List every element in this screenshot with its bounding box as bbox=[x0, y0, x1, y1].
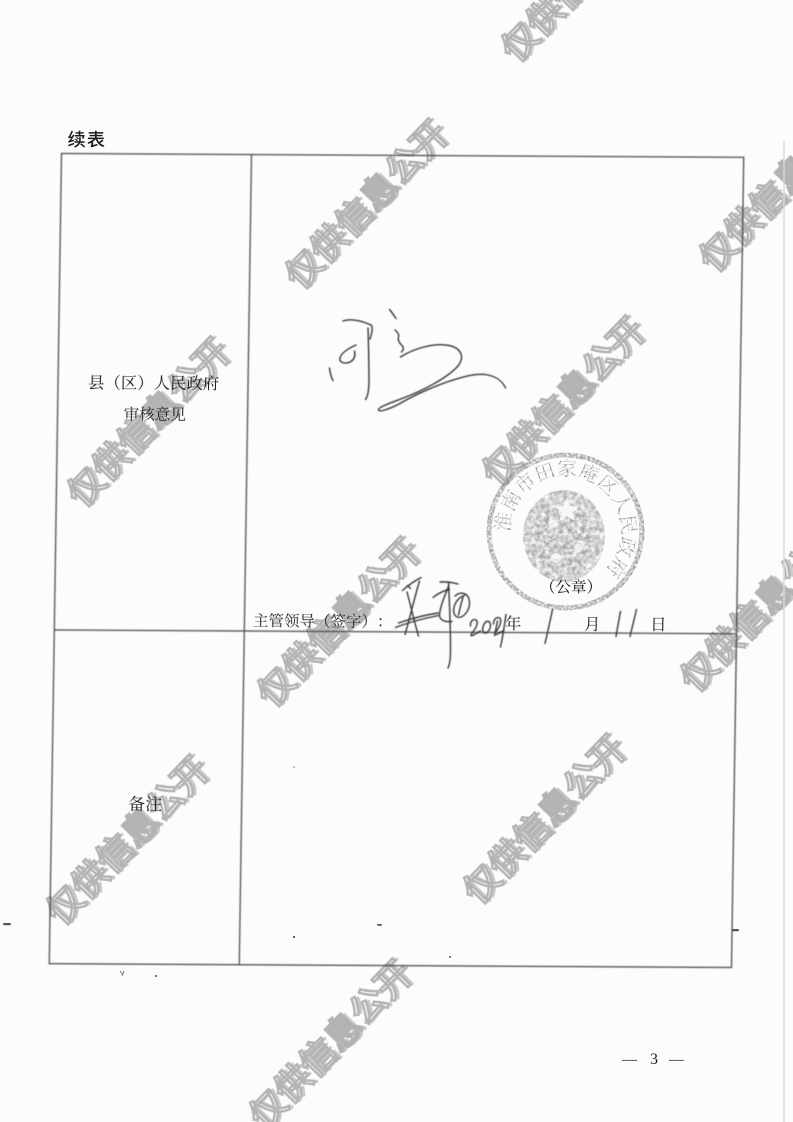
svg-text:—: — bbox=[621, 1052, 638, 1068]
svg-text:3: 3 bbox=[650, 1051, 658, 1068]
svg-text:—: — bbox=[668, 1052, 685, 1068]
